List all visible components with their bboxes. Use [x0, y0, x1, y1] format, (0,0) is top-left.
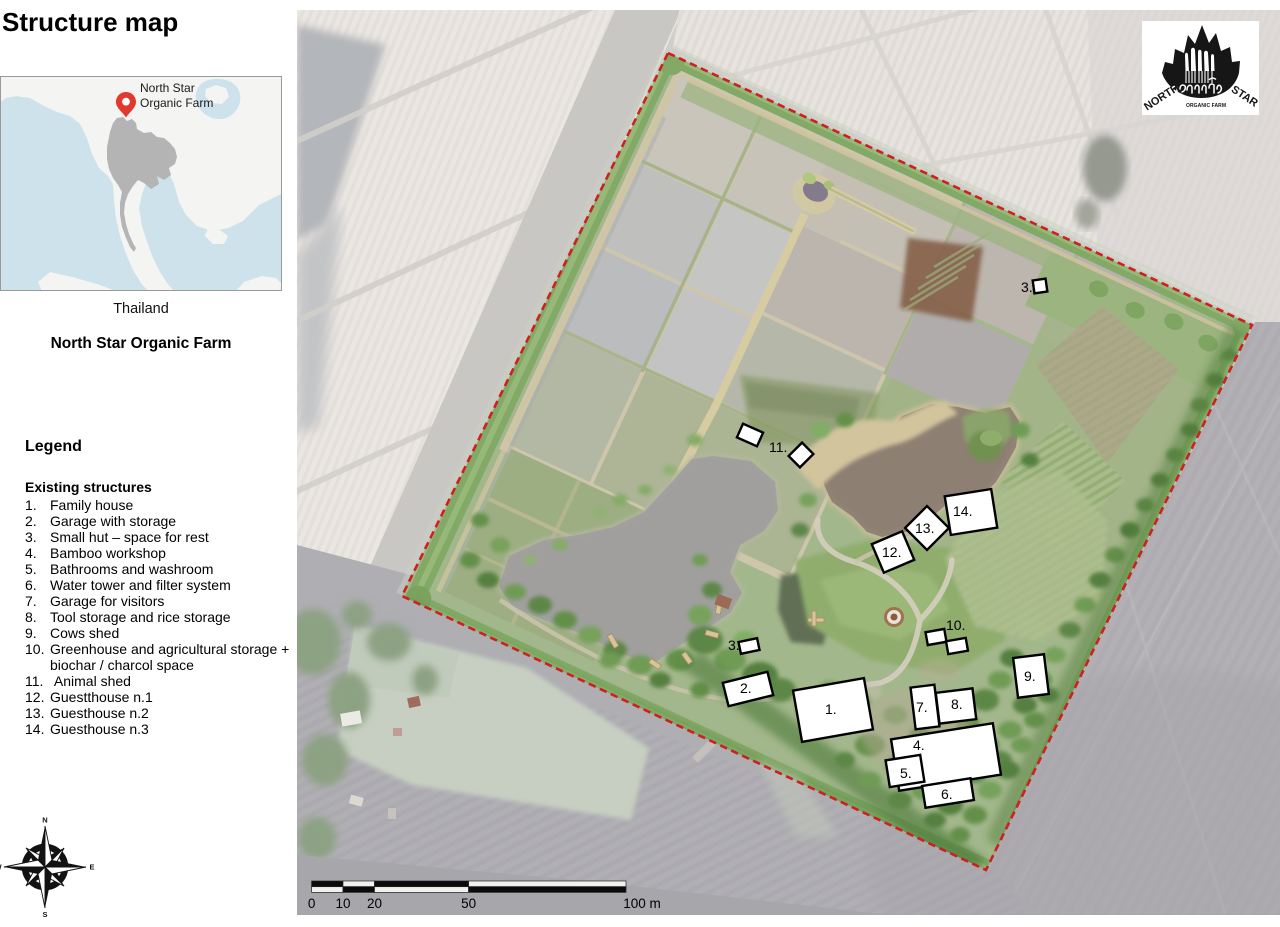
svg-text:N: N: [42, 816, 47, 825]
svg-text:50: 50: [461, 896, 476, 911]
svg-text:14.: 14.: [953, 503, 972, 519]
svg-text:North Star: North Star: [140, 81, 195, 95]
svg-text:Organic Farm: Organic Farm: [140, 96, 213, 110]
svg-text:10: 10: [335, 896, 350, 911]
svg-text:E: E: [89, 863, 94, 872]
svg-text:11.: 11.: [769, 439, 787, 455]
svg-text:3.: 3.: [1021, 279, 1033, 295]
svg-text:10.: 10.: [946, 617, 965, 633]
svg-text:4.: 4.: [913, 737, 925, 753]
svg-text:100 m: 100 m: [623, 896, 661, 911]
svg-text:W: W: [0, 863, 2, 872]
svg-text:20: 20: [367, 896, 382, 911]
svg-text:8.: 8.: [951, 696, 963, 712]
svg-text:5.: 5.: [900, 765, 912, 781]
svg-text:9.: 9.: [1024, 668, 1036, 684]
svg-text:13.: 13.: [915, 520, 934, 536]
svg-text:S: S: [42, 910, 47, 919]
svg-text:0: 0: [308, 896, 316, 911]
svg-text:6.: 6.: [941, 786, 953, 802]
svg-text:3.: 3.: [728, 637, 740, 653]
svg-text:2.: 2.: [740, 680, 752, 696]
svg-text:1.: 1.: [825, 701, 837, 717]
svg-text:12.: 12.: [882, 544, 901, 560]
svg-text:ORGANIC FARM: ORGANIC FARM: [1186, 103, 1226, 109]
svg-text:7.: 7.: [916, 699, 928, 715]
